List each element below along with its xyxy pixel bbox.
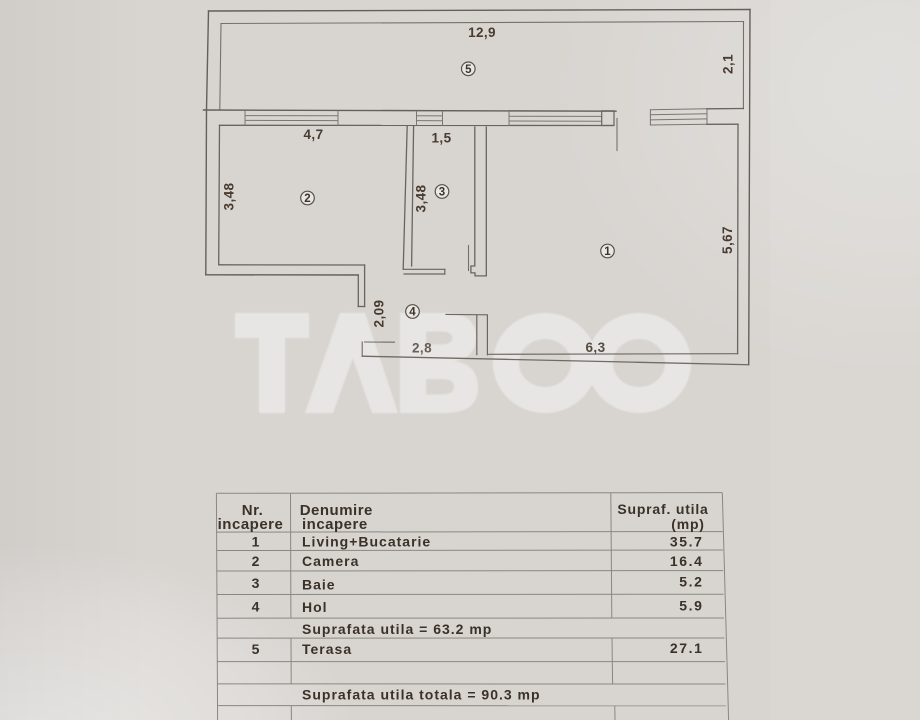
svg-text:1: 1 <box>604 246 611 258</box>
svg-text:(mp): (mp) <box>671 516 705 532</box>
svg-text:3: 3 <box>439 187 445 199</box>
svg-text:27.1: 27.1 <box>670 640 704 656</box>
svg-text:2,1: 2,1 <box>721 54 736 74</box>
svg-text:Terasa: Terasa <box>302 641 352 657</box>
svg-text:5.2: 5.2 <box>679 574 703 590</box>
svg-text:6,3: 6,3 <box>586 340 606 355</box>
svg-text:3,48: 3,48 <box>222 182 237 210</box>
svg-text:4,7: 4,7 <box>304 127 324 142</box>
svg-text:12,9: 12,9 <box>468 25 496 40</box>
svg-text:incapere: incapere <box>302 516 368 533</box>
svg-text:4: 4 <box>252 599 261 615</box>
svg-text:Supraf. utila: Supraf. utila <box>617 501 708 517</box>
svg-text:35.7: 35.7 <box>670 534 704 550</box>
svg-text:3: 3 <box>252 575 261 591</box>
svg-text:2,8: 2,8 <box>412 341 432 356</box>
svg-text:Living+Bucatarie: Living+Bucatarie <box>302 534 431 550</box>
svg-text:5,67: 5,67 <box>720 226 735 254</box>
svg-text:5.9: 5.9 <box>679 598 703 614</box>
svg-text:Baie: Baie <box>302 577 336 593</box>
svg-text:2: 2 <box>252 553 261 569</box>
svg-text:1: 1 <box>252 534 261 550</box>
svg-text:incapere: incapere <box>218 516 284 533</box>
svg-text:5: 5 <box>252 641 261 657</box>
svg-text:16.4: 16.4 <box>670 553 704 569</box>
svg-text:Suprafata utila = 63.2 mp: Suprafata utila = 63.2 mp <box>302 621 492 637</box>
svg-text:Camera: Camera <box>302 553 359 569</box>
svg-text:Hol: Hol <box>302 599 328 615</box>
svg-text:2,09: 2,09 <box>372 300 387 328</box>
svg-text:2: 2 <box>304 193 310 205</box>
svg-text:1,5: 1,5 <box>432 131 452 146</box>
svg-text:4: 4 <box>409 307 416 319</box>
svg-text:5: 5 <box>465 64 472 76</box>
svg-text:3,48: 3,48 <box>414 184 429 212</box>
svg-text:Suprafata utila totala = 90.3: Suprafata utila totala = 90.3 mp <box>302 687 541 703</box>
